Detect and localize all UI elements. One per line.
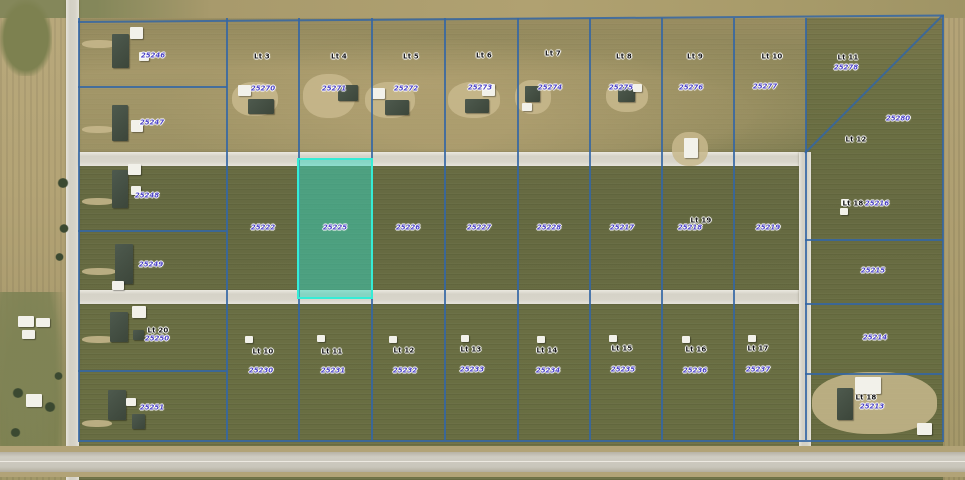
- farm-building: [18, 316, 34, 327]
- boundary-line: [78, 370, 227, 372]
- boundary-line: [805, 239, 943, 241]
- grain-bin: [840, 208, 848, 215]
- highway-shoulder-south: [0, 472, 965, 477]
- boundary-line: [805, 303, 943, 305]
- lot-label: Lt 14: [537, 348, 558, 355]
- farmhouse: [112, 34, 129, 68]
- parcel-number-label[interactable]: 25230: [249, 368, 273, 375]
- shed: [684, 138, 698, 158]
- lot-label: Lt 15: [612, 346, 633, 353]
- shed: [126, 398, 136, 406]
- boundary-line: [78, 86, 227, 88]
- shed: [522, 103, 532, 111]
- lot-label: Lt 6: [476, 53, 492, 60]
- shed: [112, 281, 124, 290]
- farm-building: [22, 330, 35, 339]
- tree: [10, 428, 21, 437]
- parcel-number-label[interactable]: 25246: [141, 53, 165, 60]
- parcel-number-label[interactable]: 25247: [140, 120, 164, 127]
- parcel-number-label[interactable]: 25277: [753, 84, 777, 91]
- grass-patch: [0, 0, 52, 76]
- barn: [465, 99, 489, 113]
- lot-label: Lt 11: [838, 55, 859, 62]
- parcel-number-label[interactable]: 25218: [678, 225, 702, 232]
- boundary-line: [805, 373, 943, 375]
- parcel-number-label[interactable]: 25237: [746, 367, 770, 374]
- highway-center-line: [0, 461, 965, 462]
- farmhouse: [855, 377, 881, 394]
- parcel-number-label[interactable]: 25231: [321, 368, 345, 375]
- boundary-line-east: [942, 15, 944, 440]
- parcel-number-label[interactable]: 25275: [609, 85, 633, 92]
- shed: [132, 306, 146, 318]
- boundary-line: [805, 18, 807, 440]
- lot-label: Lt 9: [687, 54, 703, 61]
- shed: [748, 335, 756, 342]
- parcel-number-label[interactable]: 25216: [865, 201, 889, 208]
- barn: [837, 388, 853, 420]
- shed: [371, 88, 385, 99]
- parcel-number-label[interactable]: 25236: [683, 368, 707, 375]
- parcel-number-label[interactable]: 25278: [834, 65, 858, 72]
- lot-label: Lt 5: [403, 54, 419, 61]
- aerial-parcel-map[interactable]: Lt 3Lt 4Lt 5Lt 6Lt 7Lt 8Lt 9Lt 10Lt 11Lt…: [0, 0, 965, 480]
- shed: [389, 336, 397, 343]
- parcel-number-label[interactable]: 25233: [460, 367, 484, 374]
- farmhouse: [110, 312, 128, 342]
- shed: [317, 335, 325, 342]
- lot-label: Lt 7: [545, 51, 561, 58]
- driveway: [82, 126, 114, 133]
- tree: [55, 253, 64, 261]
- parcel-number-label[interactable]: 25214: [863, 335, 887, 342]
- east-field-strip: [943, 0, 965, 480]
- barn: [385, 100, 409, 115]
- parcel-number-label[interactable]: 25251: [140, 405, 164, 412]
- boundary-line: [733, 18, 735, 440]
- parcel-number-label[interactable]: 25248: [135, 193, 159, 200]
- lot-label: Lt 3: [254, 54, 270, 61]
- shed: [633, 84, 642, 92]
- parcel-number-label[interactable]: 25227: [467, 225, 491, 232]
- driveway: [82, 40, 116, 48]
- parcel-number-label[interactable]: 25271: [322, 86, 346, 93]
- parcel-number-label[interactable]: 25235: [611, 367, 635, 374]
- tree: [54, 372, 63, 380]
- parcel-number-label[interactable]: 25272: [394, 86, 418, 93]
- shed: [133, 330, 144, 340]
- parcel-number-label[interactable]: 25249: [139, 262, 163, 269]
- driveway: [82, 420, 112, 427]
- highway: [0, 452, 965, 472]
- boundary-line-west: [78, 18, 80, 440]
- parcel-number-selected[interactable]: 25225: [323, 225, 347, 232]
- parcel-number-label[interactable]: 25274: [538, 85, 562, 92]
- farm-building: [36, 318, 50, 327]
- lot-label: Lt 13: [461, 347, 482, 354]
- parcel-number-label[interactable]: 25219: [756, 225, 780, 232]
- shed: [130, 27, 143, 39]
- gravel-road-south: [79, 290, 806, 304]
- parcel-number-label[interactable]: 25270: [251, 86, 275, 93]
- lot-label: Lt 8: [616, 54, 632, 61]
- shed: [537, 336, 545, 343]
- boundary-line-south: [78, 440, 944, 442]
- parcel-number-label[interactable]: 25222: [251, 225, 275, 232]
- shed: [609, 335, 617, 342]
- farmhouse: [108, 390, 126, 420]
- lot-label: Lt 12: [394, 348, 415, 355]
- lot-label: Lt 20: [148, 328, 169, 335]
- driveway: [82, 268, 116, 275]
- parcel-number-label[interactable]: 25273: [468, 85, 492, 92]
- parcel-number-label[interactable]: 25226: [396, 225, 420, 232]
- boundary-line: [226, 18, 228, 440]
- parcel-number-label[interactable]: 25250: [145, 336, 169, 343]
- lot-label: Lt 16: [686, 347, 707, 354]
- shed: [461, 335, 469, 342]
- lot-label: Lt 4: [331, 54, 347, 61]
- tree: [57, 178, 69, 188]
- lot-label: Lt 10: [253, 349, 274, 356]
- lot-label: Lt 11: [322, 349, 343, 356]
- driveway: [82, 198, 114, 205]
- tree: [59, 224, 69, 233]
- shed: [682, 336, 690, 343]
- lot-label: Lt 18: [856, 395, 877, 402]
- boundary-line: [78, 230, 227, 232]
- lot-label: Lt 12: [846, 137, 867, 144]
- boundary-line: [444, 18, 446, 440]
- parcel-number-label[interactable]: 25213: [860, 404, 884, 411]
- farmhouse: [112, 105, 128, 141]
- shed: [132, 414, 145, 429]
- lot-label: Lt 17: [748, 346, 769, 353]
- parcel-number-label[interactable]: 25232: [393, 368, 417, 375]
- farmhouse: [26, 394, 42, 407]
- boundary-line: [661, 18, 663, 440]
- parcel-number-label[interactable]: 25217: [610, 225, 634, 232]
- lot-label: Lt 18: [843, 201, 864, 208]
- shed: [128, 164, 141, 175]
- parcel-number-label[interactable]: 25234: [536, 368, 560, 375]
- shed: [245, 336, 253, 343]
- parcel-number-label[interactable]: 25228: [537, 225, 561, 232]
- boundary-line: [517, 18, 519, 440]
- farmhouse: [112, 170, 128, 208]
- parcel-number-label[interactable]: 25276: [679, 85, 703, 92]
- lot-label: Lt 10: [762, 54, 783, 61]
- shed: [238, 85, 251, 96]
- shed: [917, 423, 932, 435]
- barn: [248, 99, 274, 114]
- tree: [44, 402, 56, 412]
- parcel-number-label[interactable]: 25215: [861, 268, 885, 275]
- boundary-line: [589, 18, 591, 440]
- parcel-number-label[interactable]: 25280: [886, 116, 910, 123]
- tree: [12, 388, 24, 398]
- farmhouse: [115, 244, 133, 284]
